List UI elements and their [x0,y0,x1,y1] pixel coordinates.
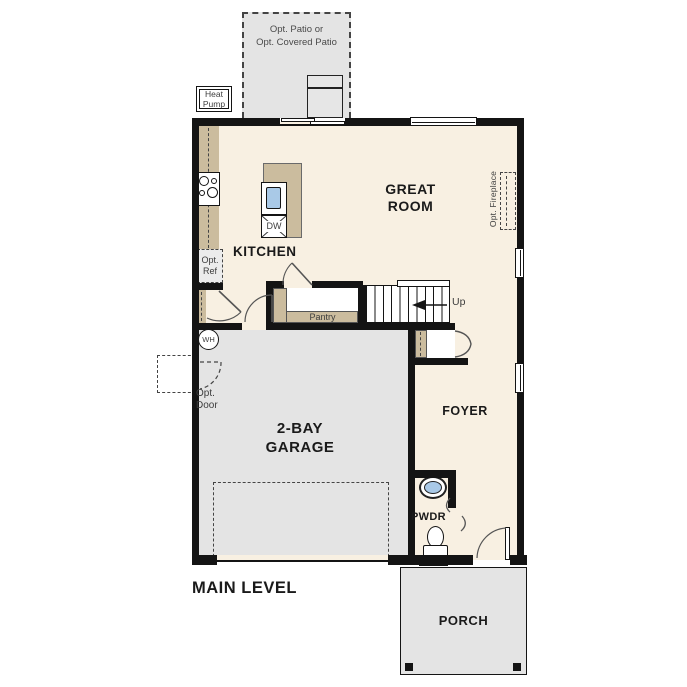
heat-pump-unit: Heat Pump [196,86,232,112]
heat-pump-label: Pump [203,99,225,109]
garage-door-outline [213,482,389,562]
stairs-rail [397,280,450,287]
sliding-door-panel [310,121,345,125]
garage-door-threshold [217,560,388,562]
water-heater-label: WH [202,335,215,344]
window [515,363,524,393]
patio-chimney-structure [307,75,343,118]
pantry-shelf-left [273,288,287,323]
main-level-title: MAIN LEVEL [192,579,297,598]
optional-door-outline [157,355,196,393]
coat-closet-shelf [415,330,427,358]
opt-ref-label: Opt. [201,255,218,266]
optional-fireplace-outline [500,172,516,230]
foyer-label: FOYER [425,403,505,419]
kitchen-sink-icon [261,182,287,215]
mudroom-strip-line [201,292,202,321]
cooktop-icon [196,172,220,206]
optional-refrigerator: Opt. Ref [197,249,223,283]
heat-pump-label: Heat [205,89,223,99]
dishwasher-icon: DW [261,215,287,238]
porch-post-icon [405,663,413,671]
pwdr-label: PWDR [411,511,446,523]
powder-sink-icon [419,476,447,499]
window [515,248,524,278]
mudroom-wall-strip [198,290,206,323]
dishwasher-label: DW [264,221,284,232]
floor-plan-canvas: Opt. Ref DW Pantry Up WH [0,0,687,687]
optional-fireplace-label: Opt. Fireplace [488,164,498,234]
pantry-label: Pantry [287,310,358,323]
kitchen-label: KITCHEN [233,244,297,259]
opt-ref-label: Ref [203,266,217,277]
water-heater-icon: WH [198,329,219,350]
window [410,117,477,126]
porch-label: PORCH [400,612,527,628]
coat-closet-rod-line [420,332,421,356]
optional-door-label: Opt. Door [196,388,218,412]
great-room-label: GREAT ROOM [368,180,453,216]
optional-fireplace-inner-line [506,176,507,226]
optional-patio-label: Opt. Patio or Opt. Covered Patio [242,23,351,49]
stairs [365,285,450,323]
garage-label: 2-BAY GARAGE [240,418,360,458]
stairs-up-label: Up [452,296,465,308]
front-door-leaf [505,527,510,560]
porch-post-icon [513,663,521,671]
